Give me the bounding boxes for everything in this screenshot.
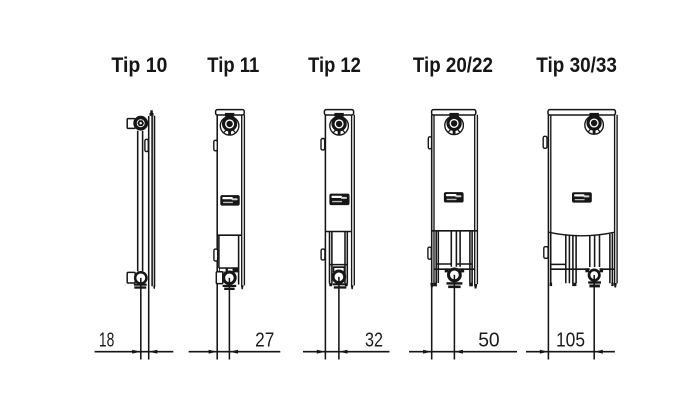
svg-text:27: 27 <box>255 328 274 351</box>
svg-text:Tip 20/22: Tip 20/22 <box>413 54 493 77</box>
svg-text:Tip 30/33: Tip 30/33 <box>536 54 617 77</box>
svg-text:Tip 12: Tip 12 <box>308 54 361 77</box>
svg-text:18: 18 <box>99 328 114 351</box>
svg-text:105: 105 <box>556 328 585 351</box>
svg-text:50: 50 <box>478 328 500 351</box>
svg-text:Tip 10: Tip 10 <box>111 54 167 77</box>
svg-text:Tip 11: Tip 11 <box>207 54 259 77</box>
svg-text:32: 32 <box>365 328 383 351</box>
